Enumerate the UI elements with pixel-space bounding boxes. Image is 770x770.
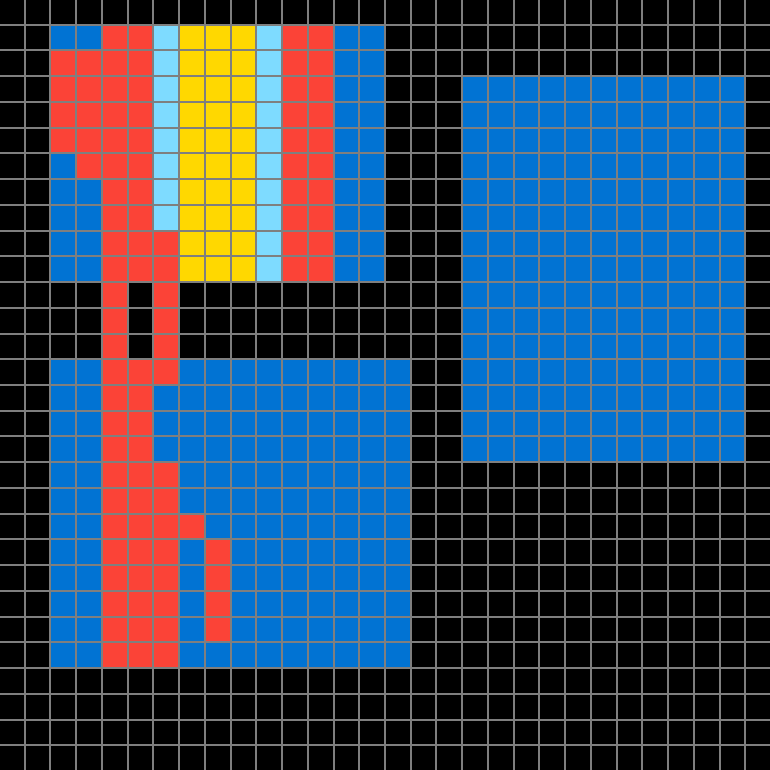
pixel-cell-black-empty[interactable] xyxy=(489,26,513,50)
pixel-cell-black-empty[interactable] xyxy=(618,51,642,75)
pixel-cell-black-empty[interactable] xyxy=(51,283,75,307)
pixel-cell-black-empty[interactable] xyxy=(540,51,564,75)
pixel-cell-light-blue[interactable] xyxy=(257,154,281,178)
pixel-cell-black-empty[interactable] xyxy=(437,335,461,359)
pixel-cell-black-empty[interactable] xyxy=(412,309,436,333)
pixel-cell-blue[interactable] xyxy=(51,154,75,178)
pixel-cell-black-empty[interactable] xyxy=(566,695,590,719)
pixel-cell-black-empty[interactable] xyxy=(643,463,667,487)
pixel-cell-red[interactable] xyxy=(309,206,333,230)
pixel-cell-black-empty[interactable] xyxy=(643,515,667,539)
pixel-cell-black-empty[interactable] xyxy=(154,721,178,745)
pixel-cell-black-empty[interactable] xyxy=(412,721,436,745)
pixel-cell-blue[interactable] xyxy=(232,566,256,590)
pixel-cell-blue[interactable] xyxy=(283,592,307,616)
pixel-cell-black-empty[interactable] xyxy=(412,335,436,359)
pixel-cell-blue[interactable] xyxy=(386,566,410,590)
pixel-cell-blue[interactable] xyxy=(360,463,384,487)
pixel-cell-black-empty[interactable] xyxy=(540,592,564,616)
pixel-cell-blue[interactable] xyxy=(335,257,359,281)
pixel-cell-blue[interactable] xyxy=(51,463,75,487)
pixel-cell-blue[interactable] xyxy=(283,463,307,487)
pixel-cell-blue[interactable] xyxy=(257,463,281,487)
pixel-cell-black-empty[interactable] xyxy=(437,360,461,384)
pixel-cell-blue[interactable] xyxy=(721,129,745,153)
pixel-cell-black-empty[interactable] xyxy=(643,26,667,50)
pixel-cell-black-empty[interactable] xyxy=(463,515,487,539)
pixel-cell-blue[interactable] xyxy=(180,463,204,487)
pixel-cell-black-empty[interactable] xyxy=(103,721,127,745)
pixel-cell-black-empty[interactable] xyxy=(0,309,24,333)
pixel-cell-black-empty[interactable] xyxy=(566,592,590,616)
pixel-cell-black-empty[interactable] xyxy=(669,643,693,667)
pixel-cell-blue[interactable] xyxy=(283,515,307,539)
pixel-cell-blue[interactable] xyxy=(360,386,384,410)
pixel-cell-yellow[interactable] xyxy=(232,77,256,101)
pixel-cell-blue[interactable] xyxy=(489,283,513,307)
pixel-cell-black-empty[interactable] xyxy=(746,335,770,359)
pixel-cell-black-empty[interactable] xyxy=(437,77,461,101)
pixel-cell-yellow[interactable] xyxy=(232,180,256,204)
pixel-cell-blue[interactable] xyxy=(51,386,75,410)
pixel-cell-black-empty[interactable] xyxy=(257,746,281,770)
pixel-cell-blue[interactable] xyxy=(309,463,333,487)
pixel-cell-black-empty[interactable] xyxy=(643,0,667,24)
pixel-cell-blue[interactable] xyxy=(515,180,539,204)
pixel-cell-black-empty[interactable] xyxy=(515,0,539,24)
pixel-cell-black-empty[interactable] xyxy=(129,283,153,307)
pixel-cell-blue[interactable] xyxy=(566,386,590,410)
pixel-cell-blue[interactable] xyxy=(77,566,101,590)
pixel-cell-black-empty[interactable] xyxy=(746,566,770,590)
pixel-cell-black-empty[interactable] xyxy=(463,721,487,745)
pixel-cell-black-empty[interactable] xyxy=(695,489,719,513)
pixel-cell-blue[interactable] xyxy=(592,103,616,127)
pixel-cell-black-empty[interactable] xyxy=(721,540,745,564)
pixel-cell-black-empty[interactable] xyxy=(335,695,359,719)
pixel-cell-black-empty[interactable] xyxy=(515,592,539,616)
pixel-cell-black-empty[interactable] xyxy=(154,746,178,770)
pixel-cell-blue[interactable] xyxy=(695,437,719,461)
pixel-cell-blue[interactable] xyxy=(386,437,410,461)
pixel-cell-blue[interactable] xyxy=(309,412,333,436)
pixel-cell-blue[interactable] xyxy=(386,515,410,539)
pixel-cell-black-empty[interactable] xyxy=(540,566,564,590)
pixel-cell-blue[interactable] xyxy=(489,77,513,101)
pixel-cell-light-blue[interactable] xyxy=(154,51,178,75)
pixel-cell-blue[interactable] xyxy=(618,283,642,307)
pixel-cell-blue[interactable] xyxy=(566,412,590,436)
pixel-cell-red[interactable] xyxy=(129,129,153,153)
pixel-cell-black-empty[interactable] xyxy=(51,695,75,719)
pixel-cell-black-empty[interactable] xyxy=(592,618,616,642)
pixel-cell-blue[interactable] xyxy=(489,335,513,359)
pixel-cell-yellow[interactable] xyxy=(180,206,204,230)
pixel-cell-blue[interactable] xyxy=(463,309,487,333)
pixel-cell-black-empty[interactable] xyxy=(0,669,24,693)
pixel-cell-black-empty[interactable] xyxy=(437,721,461,745)
pixel-cell-blue[interactable] xyxy=(669,360,693,384)
pixel-cell-blue[interactable] xyxy=(360,412,384,436)
pixel-cell-black-empty[interactable] xyxy=(746,669,770,693)
pixel-cell-black-empty[interactable] xyxy=(335,335,359,359)
pixel-cell-blue[interactable] xyxy=(232,437,256,461)
pixel-cell-blue[interactable] xyxy=(489,206,513,230)
pixel-cell-black-empty[interactable] xyxy=(515,489,539,513)
pixel-cell-black-empty[interactable] xyxy=(592,566,616,590)
pixel-cell-black-empty[interactable] xyxy=(412,515,436,539)
pixel-cell-black-empty[interactable] xyxy=(360,283,384,307)
pixel-cell-blue[interactable] xyxy=(77,618,101,642)
pixel-cell-blue[interactable] xyxy=(540,180,564,204)
pixel-cell-black-empty[interactable] xyxy=(437,180,461,204)
pixel-cell-black-empty[interactable] xyxy=(412,206,436,230)
pixel-cell-blue[interactable] xyxy=(592,154,616,178)
pixel-cell-blue[interactable] xyxy=(643,283,667,307)
pixel-cell-black-empty[interactable] xyxy=(206,0,230,24)
pixel-cell-black-empty[interactable] xyxy=(283,309,307,333)
pixel-cell-blue[interactable] xyxy=(51,566,75,590)
pixel-cell-blue[interactable] xyxy=(669,180,693,204)
pixel-cell-black-empty[interactable] xyxy=(26,257,50,281)
pixel-cell-black-empty[interactable] xyxy=(437,232,461,256)
pixel-cell-black-empty[interactable] xyxy=(540,489,564,513)
pixel-cell-black-empty[interactable] xyxy=(129,0,153,24)
pixel-cell-light-blue[interactable] xyxy=(257,206,281,230)
pixel-cell-blue[interactable] xyxy=(515,309,539,333)
pixel-cell-black-empty[interactable] xyxy=(309,309,333,333)
pixel-cell-black-empty[interactable] xyxy=(360,746,384,770)
pixel-cell-blue[interactable] xyxy=(618,335,642,359)
pixel-cell-black-empty[interactable] xyxy=(463,0,487,24)
pixel-cell-yellow[interactable] xyxy=(206,232,230,256)
pixel-cell-black-empty[interactable] xyxy=(746,643,770,667)
pixel-cell-red[interactable] xyxy=(283,103,307,127)
pixel-cell-blue[interactable] xyxy=(618,103,642,127)
pixel-cell-blue[interactable] xyxy=(51,232,75,256)
pixel-cell-blue[interactable] xyxy=(232,618,256,642)
pixel-cell-black-empty[interactable] xyxy=(0,77,24,101)
pixel-cell-black-empty[interactable] xyxy=(26,412,50,436)
pixel-cell-black-empty[interactable] xyxy=(721,0,745,24)
pixel-cell-red[interactable] xyxy=(129,540,153,564)
pixel-cell-black-empty[interactable] xyxy=(566,540,590,564)
pixel-cell-black-empty[interactable] xyxy=(412,129,436,153)
pixel-cell-black-empty[interactable] xyxy=(515,643,539,667)
pixel-cell-blue[interactable] xyxy=(618,412,642,436)
pixel-cell-black-empty[interactable] xyxy=(721,566,745,590)
pixel-cell-black-empty[interactable] xyxy=(437,0,461,24)
pixel-cell-blue[interactable] xyxy=(309,618,333,642)
pixel-cell-blue[interactable] xyxy=(180,566,204,590)
pixel-cell-black-empty[interactable] xyxy=(437,103,461,127)
pixel-cell-black-empty[interactable] xyxy=(618,540,642,564)
pixel-cell-black-empty[interactable] xyxy=(26,26,50,50)
pixel-cell-black-empty[interactable] xyxy=(540,746,564,770)
pixel-cell-black-empty[interactable] xyxy=(566,51,590,75)
pixel-cell-black-empty[interactable] xyxy=(0,26,24,50)
pixel-cell-black-empty[interactable] xyxy=(618,695,642,719)
pixel-cell-black-empty[interactable] xyxy=(206,669,230,693)
pixel-cell-black-empty[interactable] xyxy=(618,592,642,616)
pixel-cell-black-empty[interactable] xyxy=(437,257,461,281)
pixel-cell-red[interactable] xyxy=(309,154,333,178)
pixel-cell-red[interactable] xyxy=(283,180,307,204)
pixel-cell-red[interactable] xyxy=(283,154,307,178)
pixel-cell-red[interactable] xyxy=(129,566,153,590)
pixel-cell-blue[interactable] xyxy=(489,129,513,153)
pixel-cell-black-empty[interactable] xyxy=(77,309,101,333)
pixel-cell-blue[interactable] xyxy=(309,566,333,590)
pixel-cell-blue[interactable] xyxy=(643,386,667,410)
pixel-cell-blue[interactable] xyxy=(463,77,487,101)
pixel-cell-blue[interactable] xyxy=(232,463,256,487)
pixel-cell-black-empty[interactable] xyxy=(643,721,667,745)
pixel-cell-black-empty[interactable] xyxy=(669,515,693,539)
pixel-cell-blue[interactable] xyxy=(592,283,616,307)
pixel-cell-blue[interactable] xyxy=(335,129,359,153)
pixel-cell-blue[interactable] xyxy=(283,412,307,436)
pixel-cell-black-empty[interactable] xyxy=(232,721,256,745)
pixel-cell-blue[interactable] xyxy=(643,335,667,359)
pixel-cell-red[interactable] xyxy=(283,51,307,75)
pixel-cell-red[interactable] xyxy=(309,129,333,153)
pixel-cell-blue[interactable] xyxy=(180,618,204,642)
pixel-cell-blue[interactable] xyxy=(540,206,564,230)
pixel-cell-blue[interactable] xyxy=(335,360,359,384)
pixel-cell-black-empty[interactable] xyxy=(26,129,50,153)
pixel-cell-black-empty[interactable] xyxy=(283,283,307,307)
pixel-cell-black-empty[interactable] xyxy=(746,26,770,50)
pixel-cell-black-empty[interactable] xyxy=(386,180,410,204)
pixel-cell-blue[interactable] xyxy=(669,257,693,281)
pixel-cell-black-empty[interactable] xyxy=(26,77,50,101)
pixel-cell-red[interactable] xyxy=(154,618,178,642)
pixel-cell-black-empty[interactable] xyxy=(77,721,101,745)
pixel-cell-blue[interactable] xyxy=(335,592,359,616)
pixel-cell-blue[interactable] xyxy=(489,412,513,436)
pixel-cell-red[interactable] xyxy=(129,643,153,667)
pixel-cell-blue[interactable] xyxy=(77,515,101,539)
pixel-cell-light-blue[interactable] xyxy=(154,103,178,127)
pixel-cell-red[interactable] xyxy=(206,592,230,616)
pixel-cell-blue[interactable] xyxy=(643,232,667,256)
pixel-cell-blue[interactable] xyxy=(540,103,564,127)
pixel-cell-yellow[interactable] xyxy=(232,26,256,50)
pixel-cell-black-empty[interactable] xyxy=(746,129,770,153)
pixel-cell-black-empty[interactable] xyxy=(386,26,410,50)
pixel-cell-black-empty[interactable] xyxy=(26,566,50,590)
pixel-cell-black-empty[interactable] xyxy=(129,669,153,693)
pixel-cell-light-blue[interactable] xyxy=(154,180,178,204)
pixel-cell-black-empty[interactable] xyxy=(206,335,230,359)
pixel-cell-red[interactable] xyxy=(154,592,178,616)
pixel-cell-black-empty[interactable] xyxy=(669,618,693,642)
pixel-cell-black-empty[interactable] xyxy=(77,0,101,24)
pixel-cell-black-empty[interactable] xyxy=(592,489,616,513)
pixel-cell-black-empty[interactable] xyxy=(386,206,410,230)
pixel-cell-black-empty[interactable] xyxy=(437,26,461,50)
pixel-cell-black-empty[interactable] xyxy=(412,489,436,513)
pixel-cell-blue[interactable] xyxy=(309,437,333,461)
pixel-cell-blue[interactable] xyxy=(360,154,384,178)
pixel-cell-black-empty[interactable] xyxy=(721,592,745,616)
pixel-cell-red[interactable] xyxy=(51,129,75,153)
pixel-cell-black-empty[interactable] xyxy=(206,746,230,770)
pixel-cell-red[interactable] xyxy=(103,515,127,539)
pixel-cell-blue[interactable] xyxy=(360,489,384,513)
pixel-cell-black-empty[interactable] xyxy=(515,746,539,770)
pixel-cell-blue[interactable] xyxy=(232,489,256,513)
pixel-cell-black-empty[interactable] xyxy=(26,283,50,307)
pixel-cell-blue[interactable] xyxy=(695,386,719,410)
pixel-cell-black-empty[interactable] xyxy=(669,669,693,693)
pixel-cell-black-empty[interactable] xyxy=(77,283,101,307)
pixel-cell-blue[interactable] xyxy=(463,129,487,153)
pixel-cell-blue[interactable] xyxy=(360,437,384,461)
pixel-cell-blue[interactable] xyxy=(360,515,384,539)
pixel-cell-red[interactable] xyxy=(103,51,127,75)
pixel-cell-black-empty[interactable] xyxy=(592,51,616,75)
pixel-cell-blue[interactable] xyxy=(180,412,204,436)
pixel-cell-black-empty[interactable] xyxy=(0,232,24,256)
pixel-cell-red[interactable] xyxy=(309,257,333,281)
pixel-cell-red[interactable] xyxy=(103,540,127,564)
pixel-cell-blue[interactable] xyxy=(335,566,359,590)
pixel-cell-black-empty[interactable] xyxy=(463,592,487,616)
pixel-cell-blue[interactable] xyxy=(515,154,539,178)
pixel-cell-red[interactable] xyxy=(129,232,153,256)
pixel-cell-blue[interactable] xyxy=(618,386,642,410)
pixel-cell-red[interactable] xyxy=(154,540,178,564)
pixel-cell-black-empty[interactable] xyxy=(669,566,693,590)
pixel-cell-yellow[interactable] xyxy=(206,180,230,204)
pixel-cell-black-empty[interactable] xyxy=(489,721,513,745)
pixel-cell-blue[interactable] xyxy=(463,283,487,307)
pixel-cell-blue[interactable] xyxy=(463,232,487,256)
pixel-cell-blue[interactable] xyxy=(489,103,513,127)
pixel-cell-blue[interactable] xyxy=(721,154,745,178)
pixel-cell-blue[interactable] xyxy=(515,412,539,436)
pixel-cell-blue[interactable] xyxy=(386,618,410,642)
pixel-cell-black-empty[interactable] xyxy=(592,26,616,50)
pixel-cell-blue[interactable] xyxy=(489,437,513,461)
pixel-cell-blue[interactable] xyxy=(180,592,204,616)
pixel-cell-blue[interactable] xyxy=(463,206,487,230)
pixel-cell-blue[interactable] xyxy=(309,360,333,384)
pixel-cell-black-empty[interactable] xyxy=(360,721,384,745)
pixel-cell-black-empty[interactable] xyxy=(618,746,642,770)
pixel-cell-blue[interactable] xyxy=(360,257,384,281)
pixel-cell-black-empty[interactable] xyxy=(26,437,50,461)
pixel-cell-blue[interactable] xyxy=(540,412,564,436)
pixel-cell-black-empty[interactable] xyxy=(669,540,693,564)
pixel-cell-blue[interactable] xyxy=(77,643,101,667)
pixel-cell-red[interactable] xyxy=(309,103,333,127)
pixel-cell-black-empty[interactable] xyxy=(51,721,75,745)
pixel-cell-blue[interactable] xyxy=(335,515,359,539)
pixel-cell-black-empty[interactable] xyxy=(437,695,461,719)
pixel-cell-black-empty[interactable] xyxy=(232,0,256,24)
pixel-cell-red[interactable] xyxy=(283,26,307,50)
pixel-cell-blue[interactable] xyxy=(643,154,667,178)
pixel-cell-yellow[interactable] xyxy=(206,206,230,230)
pixel-cell-black-empty[interactable] xyxy=(515,26,539,50)
pixel-cell-blue[interactable] xyxy=(386,643,410,667)
pixel-cell-red[interactable] xyxy=(103,309,127,333)
pixel-cell-blue[interactable] xyxy=(180,489,204,513)
pixel-cell-blue[interactable] xyxy=(669,232,693,256)
pixel-cell-red[interactable] xyxy=(103,257,127,281)
pixel-cell-black-empty[interactable] xyxy=(463,669,487,693)
pixel-cell-blue[interactable] xyxy=(386,489,410,513)
pixel-cell-blue[interactable] xyxy=(206,515,230,539)
pixel-cell-black-empty[interactable] xyxy=(103,695,127,719)
pixel-cell-black-empty[interactable] xyxy=(618,489,642,513)
pixel-cell-black-empty[interactable] xyxy=(309,0,333,24)
pixel-cell-black-empty[interactable] xyxy=(412,283,436,307)
pixel-cell-blue[interactable] xyxy=(360,206,384,230)
pixel-cell-black-empty[interactable] xyxy=(463,51,487,75)
pixel-cell-black-empty[interactable] xyxy=(386,77,410,101)
pixel-cell-black-empty[interactable] xyxy=(51,669,75,693)
pixel-cell-blue[interactable] xyxy=(618,360,642,384)
pixel-cell-black-empty[interactable] xyxy=(746,618,770,642)
pixel-cell-blue[interactable] xyxy=(721,283,745,307)
pixel-cell-black-empty[interactable] xyxy=(669,0,693,24)
pixel-cell-black-empty[interactable] xyxy=(489,566,513,590)
pixel-cell-black-empty[interactable] xyxy=(566,26,590,50)
pixel-cell-blue[interactable] xyxy=(335,180,359,204)
pixel-cell-blue[interactable] xyxy=(360,26,384,50)
pixel-cell-blue[interactable] xyxy=(335,51,359,75)
pixel-cell-blue[interactable] xyxy=(721,206,745,230)
pixel-cell-blue[interactable] xyxy=(283,360,307,384)
pixel-cell-blue[interactable] xyxy=(77,463,101,487)
pixel-cell-blue[interactable] xyxy=(643,257,667,281)
pixel-cell-black-empty[interactable] xyxy=(746,232,770,256)
pixel-cell-blue[interactable] xyxy=(463,180,487,204)
pixel-cell-black-empty[interactable] xyxy=(695,592,719,616)
pixel-cell-blue[interactable] xyxy=(669,309,693,333)
pixel-cell-blue[interactable] xyxy=(643,412,667,436)
pixel-cell-blue[interactable] xyxy=(335,26,359,50)
pixel-cell-blue[interactable] xyxy=(566,103,590,127)
pixel-cell-blue[interactable] xyxy=(283,386,307,410)
pixel-cell-black-empty[interactable] xyxy=(695,463,719,487)
pixel-cell-black-empty[interactable] xyxy=(180,0,204,24)
pixel-cell-red[interactable] xyxy=(103,26,127,50)
pixel-cell-blue[interactable] xyxy=(463,257,487,281)
pixel-cell-black-empty[interactable] xyxy=(154,695,178,719)
pixel-cell-blue[interactable] xyxy=(386,463,410,487)
pixel-cell-black-empty[interactable] xyxy=(206,721,230,745)
pixel-cell-blue[interactable] xyxy=(463,154,487,178)
pixel-cell-red[interactable] xyxy=(103,437,127,461)
pixel-cell-blue[interactable] xyxy=(566,335,590,359)
pixel-cell-blue[interactable] xyxy=(232,643,256,667)
pixel-cell-blue[interactable] xyxy=(721,257,745,281)
pixel-cell-blue[interactable] xyxy=(592,412,616,436)
pixel-cell-black-empty[interactable] xyxy=(437,618,461,642)
pixel-cell-red[interactable] xyxy=(154,232,178,256)
pixel-cell-blue[interactable] xyxy=(360,618,384,642)
pixel-cell-black-empty[interactable] xyxy=(0,566,24,590)
pixel-cell-black-empty[interactable] xyxy=(77,669,101,693)
pixel-cell-black-empty[interactable] xyxy=(463,643,487,667)
pixel-cell-blue[interactable] xyxy=(51,26,75,50)
pixel-cell-black-empty[interactable] xyxy=(592,695,616,719)
